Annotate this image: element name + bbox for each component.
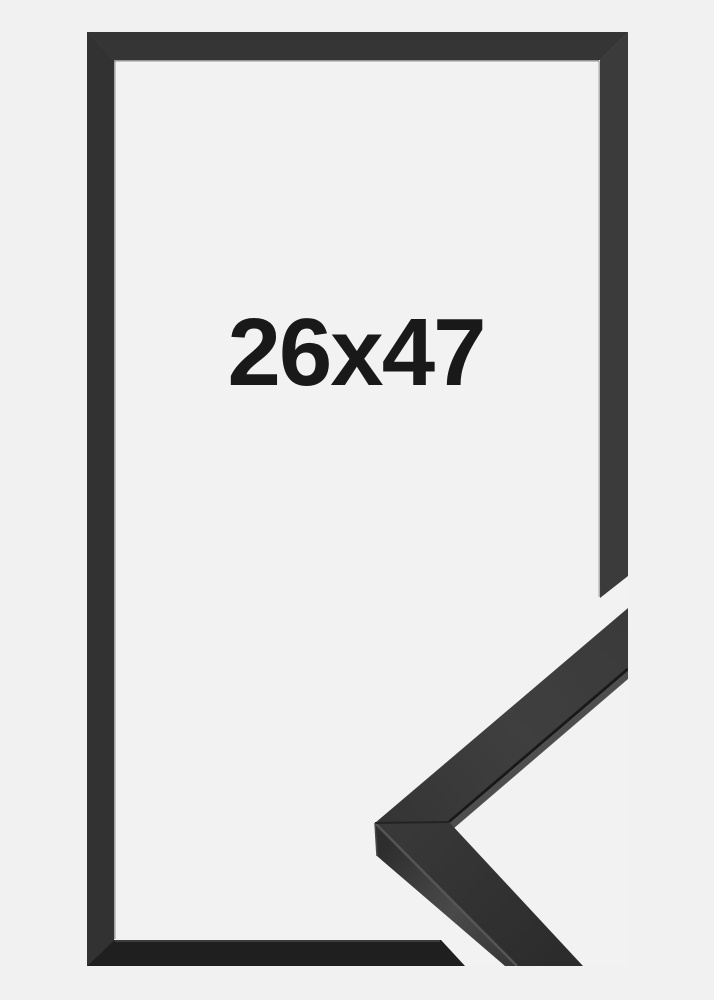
frame-interior xyxy=(87,32,628,966)
corner-sample-miter-seam xyxy=(375,822,449,823)
frame-illustration: 26x47 xyxy=(0,0,714,1000)
frame-border-top xyxy=(87,32,628,60)
frame-border-left xyxy=(87,32,114,966)
product-photo: 26x47 xyxy=(0,0,714,1000)
frame-border-bottom xyxy=(87,940,465,966)
frame-border-right xyxy=(600,32,628,598)
frame-size-label: 26x47 xyxy=(228,299,485,406)
